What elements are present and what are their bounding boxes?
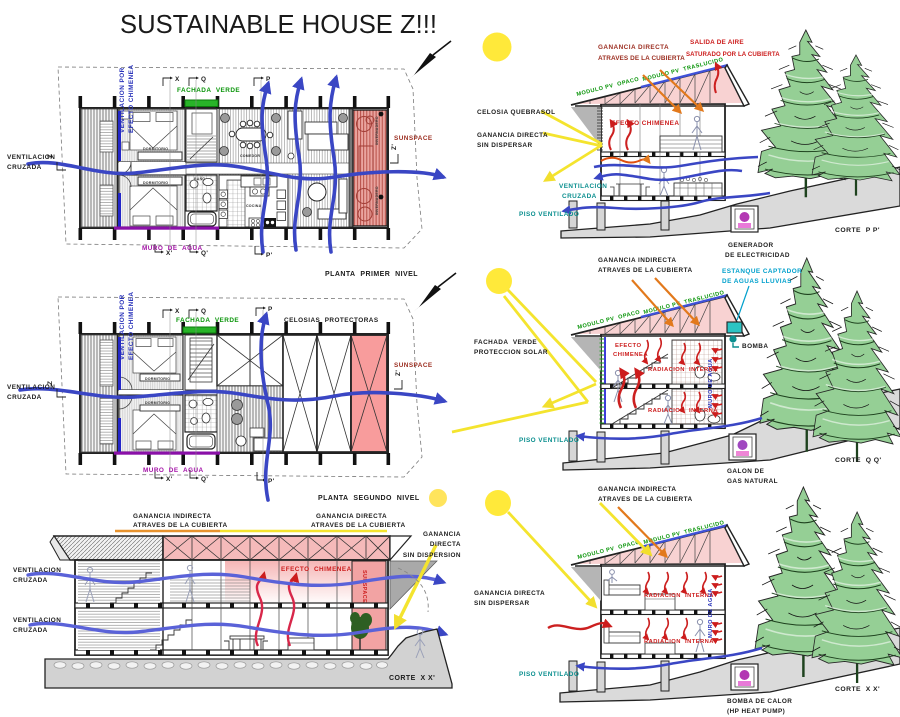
svg-text:MURO DE AGUA: MURO DE AGUA [143,467,204,474]
svg-text:INVERNADERO: INVERNADERO [375,116,379,145]
svg-text:X': X' [166,476,173,483]
svg-text:RADIACION INTERNA: RADIACION INTERNA [648,408,718,414]
svg-text:VENTILACION: VENTILACION [559,183,607,190]
svg-text:EFECTO CHIMENEA: EFECTO CHIMENEA [128,65,135,133]
svg-text:GALON DE: GALON DE [727,468,765,475]
svg-text:PROTECCION SOLAR: PROTECCION SOLAR [474,349,548,356]
svg-text:Q': Q' [201,476,208,483]
svg-text:SUNSPACE: SUNSPACE [394,135,433,142]
svg-text:DORMITORIO: DORMITORIO [143,181,168,185]
svg-text:PISO VENTILADO: PISO VENTILADO [519,211,579,218]
svg-text:DORMITORIO: DORMITORIO [143,147,168,151]
svg-text:FACHADA VERDE: FACHADA VERDE [177,87,240,94]
svg-text:CORTE P P': CORTE P P' [835,227,880,234]
svg-text:GANANCIA: GANANCIA [423,531,461,538]
svg-text:RADIACION INTERNA: RADIACION INTERNA [648,367,718,373]
svg-text:PLANTA SEGUNDO NIVEL: PLANTA SEGUNDO NIVEL [318,495,420,502]
svg-text:PLANTA PRIMER NIVEL: PLANTA PRIMER NIVEL [325,271,418,278]
svg-text:GANANCIA INDIRECTA: GANANCIA INDIRECTA [133,513,211,520]
svg-text:GAS NATURAL: GAS NATURAL [727,478,778,485]
svg-text:COCINA: COCINA [246,204,262,208]
svg-text:ATRAVES DE LA CUBIERTA: ATRAVES DE LA CUBIERTA [133,522,228,529]
svg-text:VENTILACION POR: VENTILACION POR [119,294,126,360]
svg-text:BOMBA: BOMBA [742,343,768,350]
svg-text:(HP HEAT PUMP): (HP HEAT PUMP) [727,708,785,715]
svg-text:MURO DE AGUA: MURO DE AGUA [142,245,203,252]
svg-text:VENTILACION: VENTILACION [13,617,61,624]
svg-text:PISO VENTILADO: PISO VENTILADO [519,437,579,444]
svg-text:FACHADA VERDE: FACHADA VERDE [176,317,239,324]
svg-text:GANANCIA DIRECTA: GANANCIA DIRECTA [598,44,669,51]
svg-text:EFECTO: EFECTO [615,343,641,349]
svg-text:PISO VENTILADO: PISO VENTILADO [519,671,579,678]
svg-text:SUNSPACE: SUNSPACE [361,570,367,603]
svg-text:INVERNADERO: INVERNADERO [375,186,379,215]
svg-text:VENTILACION: VENTILACION [7,154,55,161]
svg-text:CORTE X X': CORTE X X' [835,686,880,693]
svg-text:CELOSIAS PROTECTORAS: CELOSIAS PROTECTORAS [284,317,379,324]
svg-text:Z': Z' [395,370,402,376]
svg-text:MURO DE AGUA: MURO DE AGUA [708,588,714,638]
svg-text:DIRECTA: DIRECTA [430,541,461,548]
svg-text:GANANCIA DIRECTA: GANANCIA DIRECTA [316,513,387,520]
svg-text:P': P' [268,478,275,485]
svg-text:P: P [266,76,271,83]
svg-text:ATRAVES DE LA CUBIERTA: ATRAVES DE LA CUBIERTA [598,55,685,62]
svg-text:EFECTO CHIMENEA: EFECTO CHIMENEA [611,120,679,127]
svg-text:VENTILACION POR: VENTILACION POR [119,67,126,133]
svg-text:CORTE Q Q': CORTE Q Q' [835,457,882,464]
svg-text:ATRAVES DE LA CUBIERTA: ATRAVES DE LA CUBIERTA [311,522,406,529]
svg-text:GANANCIA DIRECTA: GANANCIA DIRECTA [477,132,548,139]
svg-text:CORTE X X': CORTE X X' [389,675,435,682]
svg-text:DE AGUAS LLUVIAS: DE AGUAS LLUVIAS [722,278,792,285]
svg-text:FACHADA VERDE: FACHADA VERDE [474,339,537,346]
svg-text:SUSTAINABLE HOUSE Z!!!: SUSTAINABLE HOUSE Z!!! [120,9,437,39]
svg-text:ESTANQUE CAPTADOR: ESTANQUE CAPTADOR [722,268,802,275]
svg-text:CHIMENEA: CHIMENEA [613,352,648,358]
svg-text:Z': Z' [391,144,398,150]
svg-text:EFECTO CHIMENEA: EFECTO CHIMENEA [128,292,135,360]
svg-text:EFECTO CHIMENEA: EFECTO CHIMENEA [281,566,352,573]
svg-text:BAÑO: BAÑO [194,176,205,181]
svg-text:RADIACION INTERNA: RADIACION INTERNA [644,593,714,599]
svg-text:GANANCIA INDIRECTA: GANANCIA INDIRECTA [598,486,676,493]
svg-text:ATRAVES DE LA CUBIERTA: ATRAVES DE LA CUBIERTA [598,267,693,274]
svg-text:GANANCIA DIRECTA: GANANCIA DIRECTA [474,590,545,597]
svg-text:SIN DISPERSAR: SIN DISPERSAR [474,600,530,607]
svg-text:X: X [175,76,180,83]
svg-text:CRUZADA: CRUZADA [7,394,42,401]
svg-text:DORMITORIO: DORMITORIO [145,401,170,405]
svg-text:DE ELECTRICIDAD: DE ELECTRICIDAD [725,252,790,259]
svg-text:ATRAVES DE LA CUBIERTA: ATRAVES DE LA CUBIERTA [598,496,693,503]
svg-text:Q: Q [201,308,206,315]
svg-text:CELOSIA QUEBRASOL: CELOSIA QUEBRASOL [477,109,555,116]
svg-text:MURO DE AGUA: MURO DE AGUA [708,358,714,408]
svg-text:CRUZADA: CRUZADA [13,577,48,584]
svg-text:X: X [175,308,180,315]
svg-text:SIN DISPERSION: SIN DISPERSION [403,552,461,559]
svg-text:VENTILACION: VENTILACION [7,384,55,391]
svg-text:COMEDOR: COMEDOR [240,154,260,158]
svg-text:SIN DISPERSAR: SIN DISPERSAR [477,142,533,149]
svg-text:VENTILACION: VENTILACION [13,567,61,574]
svg-text:CRUZADA: CRUZADA [562,193,597,200]
svg-text:Q: Q [201,76,206,83]
svg-text:SUNSPACE: SUNSPACE [394,362,433,369]
svg-text:CRUZADA: CRUZADA [7,164,42,171]
svg-text:DORMITORIO: DORMITORIO [145,377,170,381]
svg-text:P: P [268,306,273,313]
svg-text:SATURADO POR LA CUBIERTA: SATURADO POR LA CUBIERTA [686,51,780,58]
svg-text:RADIACION INTERNA: RADIACION INTERNA [644,639,714,645]
svg-text:GENERADOR: GENERADOR [728,242,774,249]
svg-text:P': P' [266,252,273,259]
svg-text:SALIDA DE AIRE: SALIDA DE AIRE [690,39,744,46]
svg-text:BOMBA DE CALOR: BOMBA DE CALOR [727,698,792,705]
svg-text:GANANCIA INDIRECTA: GANANCIA INDIRECTA [598,257,676,264]
svg-text:CRUZADA: CRUZADA [13,627,48,634]
